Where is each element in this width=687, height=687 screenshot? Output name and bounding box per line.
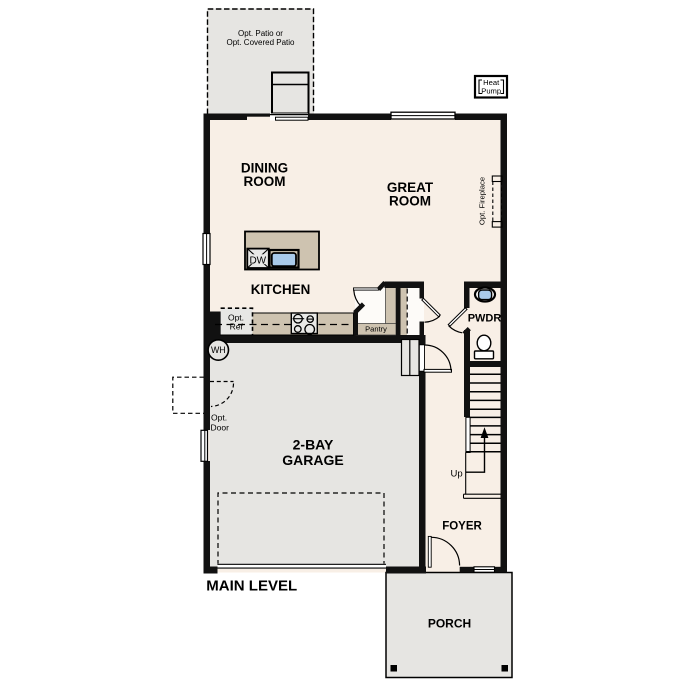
svg-text:Opt.: Opt. [211, 413, 227, 423]
svg-text:KITCHEN: KITCHEN [251, 282, 311, 297]
svg-text:Up: Up [451, 469, 463, 480]
svg-text:MAIN LEVEL: MAIN LEVEL [206, 577, 297, 594]
svg-text:Door: Door [211, 423, 230, 433]
svg-text:PWDR: PWDR [468, 313, 502, 325]
svg-text:WH: WH [211, 345, 226, 355]
svg-text:Pump: Pump [481, 87, 501, 96]
svg-text:ROOM: ROOM [389, 194, 431, 209]
svg-text:FOYER: FOYER [442, 521, 482, 533]
svg-text:Opt. Patio or: Opt. Patio or [238, 29, 283, 38]
svg-text:ROOM: ROOM [244, 174, 286, 189]
svg-text:Opt. Covered Patio: Opt. Covered Patio [226, 38, 295, 47]
svg-text:PORCH: PORCH [428, 617, 471, 631]
svg-text:Opt. Fireplace: Opt. Fireplace [478, 177, 487, 225]
svg-text:DW: DW [249, 255, 266, 266]
svg-text:Pantry: Pantry [365, 325, 387, 334]
svg-text:GARAGE: GARAGE [282, 452, 343, 468]
svg-text:2-BAY: 2-BAY [293, 437, 334, 453]
svg-text:Ref: Ref [230, 321, 244, 331]
